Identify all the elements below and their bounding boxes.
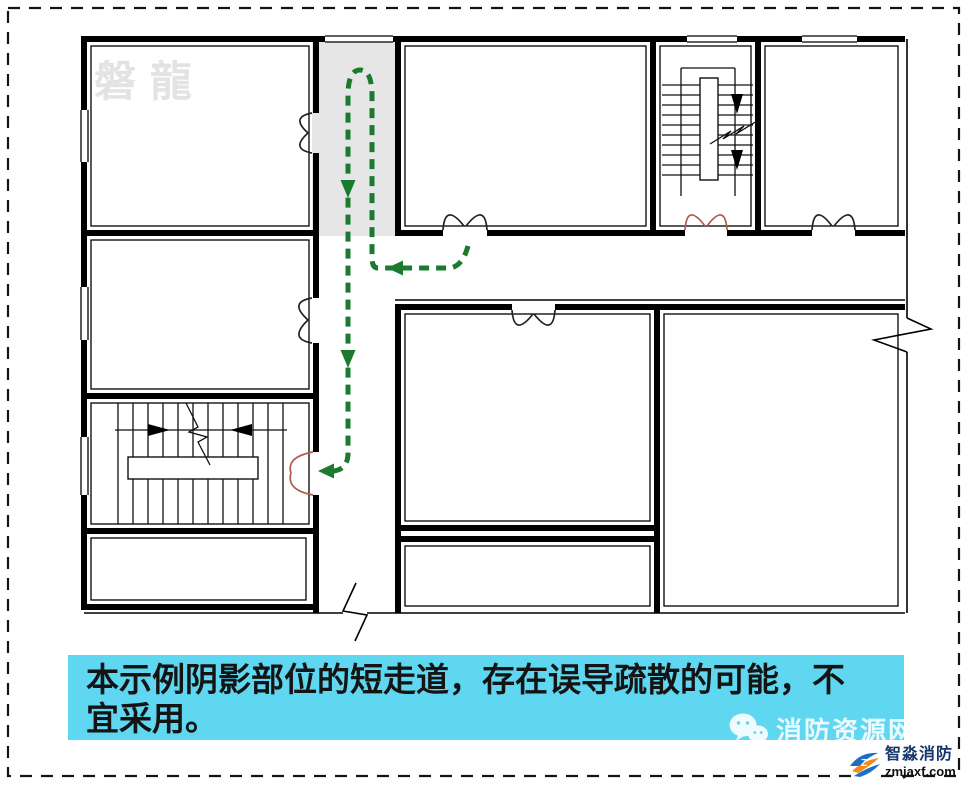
route-arrowhead-left bbox=[387, 261, 403, 276]
wechat-site-label: 消防资源网 bbox=[776, 711, 916, 748]
room-inner-outlines bbox=[91, 46, 898, 606]
door-right-stair-red bbox=[685, 215, 727, 230]
stair-direction-arrow bbox=[731, 94, 743, 114]
zm-logo-domain: zmjaxf.com bbox=[885, 765, 956, 778]
walls-thick bbox=[81, 36, 905, 613]
door-room-topmiddle bbox=[443, 215, 487, 230]
zhimiao-branding: Z 智淼消防 zmjaxf.com bbox=[846, 744, 956, 780]
svg-text:Z: Z bbox=[861, 758, 867, 769]
stair-break-line bbox=[186, 403, 210, 465]
door-room-topright bbox=[812, 215, 855, 230]
stair-direction-arrow bbox=[731, 150, 743, 170]
stair-stringer bbox=[700, 78, 718, 180]
door-room-topleft bbox=[300, 113, 312, 153]
wechat-bubbles-icon bbox=[728, 712, 770, 748]
break-symbols bbox=[343, 318, 931, 641]
route-arrowhead-down bbox=[341, 350, 356, 368]
wall-break-right bbox=[874, 318, 931, 352]
door-room-midleft bbox=[299, 298, 312, 343]
watermark-panlong: 磐龍 bbox=[94, 48, 206, 109]
stair-direction-arrow bbox=[148, 424, 170, 436]
stair-direction-arrow bbox=[230, 424, 252, 436]
route-arrowhead-into-stair bbox=[318, 464, 334, 479]
zm-swirl-logo: Z bbox=[846, 744, 882, 780]
right-stair bbox=[662, 68, 757, 196]
door-room-bottommiddle bbox=[512, 310, 555, 325]
wechat-branding: 消防资源网 bbox=[728, 711, 916, 748]
stair-landing bbox=[128, 457, 258, 479]
zm-logo-name: 智淼消防 bbox=[885, 747, 956, 763]
wall-break-bottom-exit bbox=[343, 583, 367, 641]
figure-fire-evacuation-plan: 磐龍 本示例阴影部位的短走道，存在误导疏散的可能，不宜采用。 消防资源网 bbox=[0, 0, 968, 785]
left-stair bbox=[115, 403, 287, 524]
